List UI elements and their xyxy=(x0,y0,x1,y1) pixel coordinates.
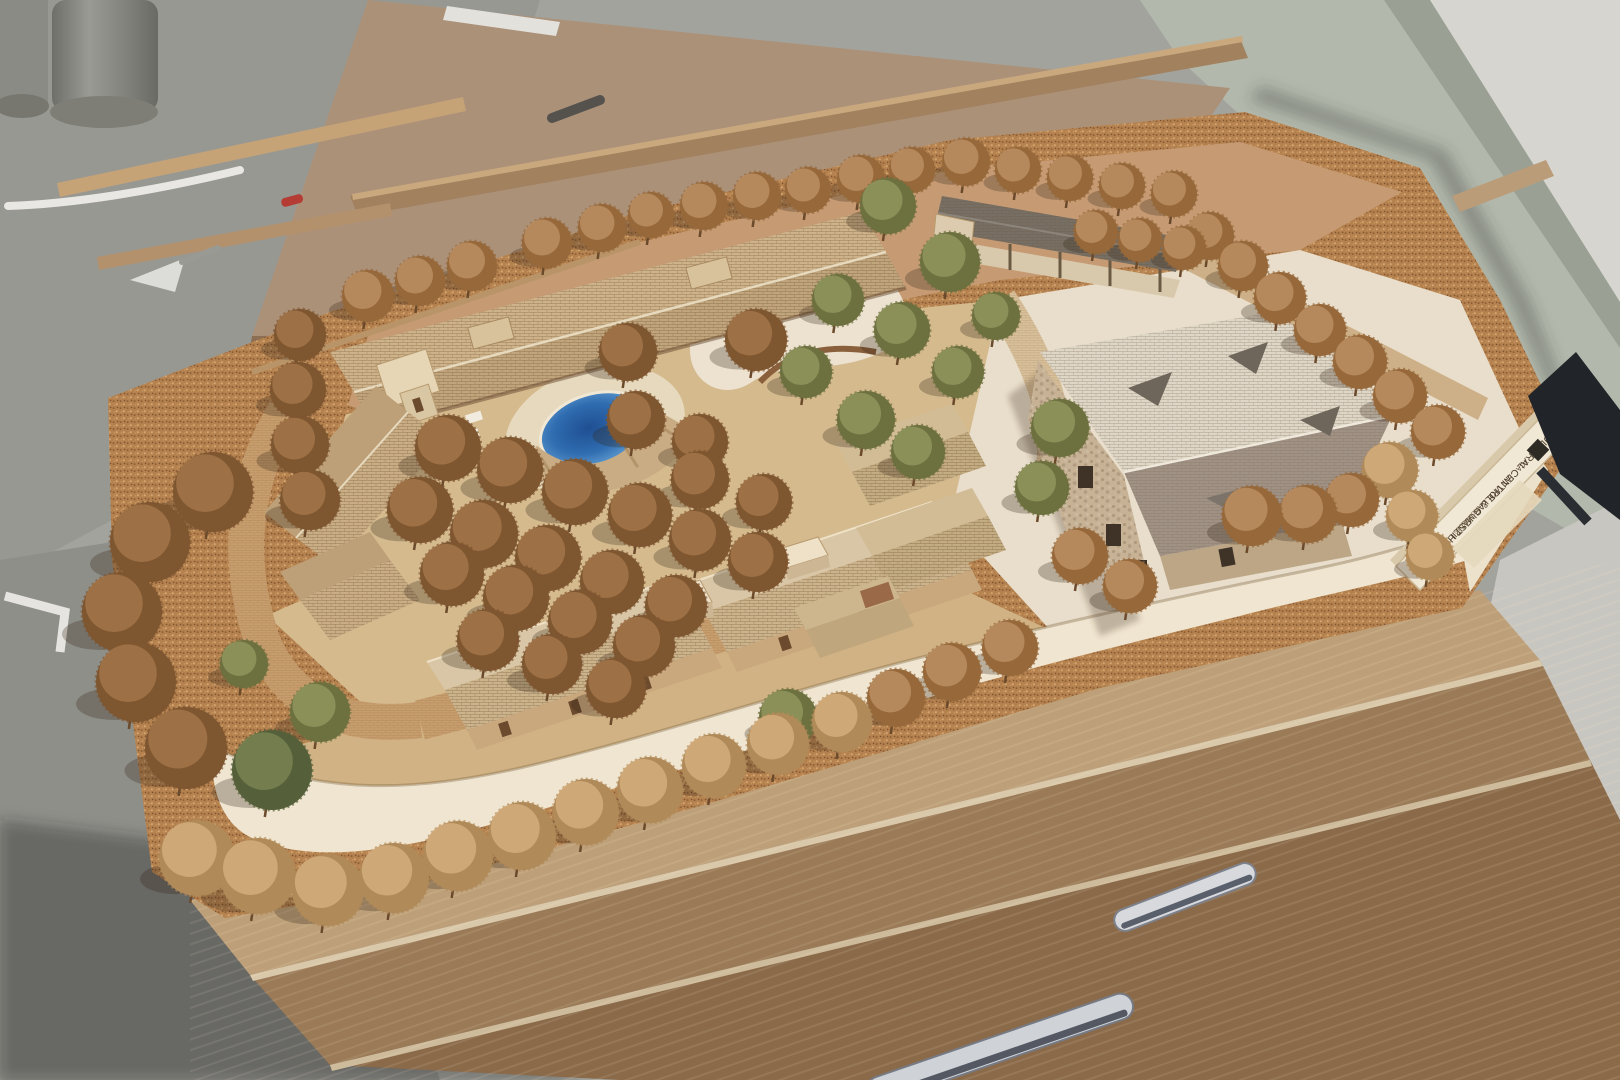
tree-canopy-highlight xyxy=(615,617,660,662)
tree-canopy-highlight xyxy=(671,511,716,556)
tree-canopy-highlight xyxy=(273,418,315,460)
tree-canopy-highlight xyxy=(934,348,971,385)
tree-canopy-highlight xyxy=(1017,463,1056,502)
tree-canopy-highlight xyxy=(893,427,932,466)
drum-large-base xyxy=(50,96,158,128)
tree-canopy-highlight xyxy=(974,293,1009,328)
scene-canvas: CULTURAL CENTRE & GUEST HOUSE AT VIOLLAR… xyxy=(0,0,1620,1080)
tree-canopy-highlight xyxy=(727,311,772,356)
metal-drums xyxy=(0,0,158,128)
tree-canopy-highlight xyxy=(601,325,643,367)
tree-canopy-highlight xyxy=(418,417,466,465)
tree-canopy-highlight xyxy=(984,622,1024,662)
tree-canopy-highlight xyxy=(782,348,819,385)
tree-canopy-highlight xyxy=(282,472,325,515)
tree-canopy-highlight xyxy=(1364,444,1404,484)
tree-canopy-highlight xyxy=(814,276,851,313)
tree-canopy-highlight xyxy=(1101,164,1134,197)
tree-canopy-highlight xyxy=(362,845,412,895)
tree-canopy-highlight xyxy=(344,272,381,309)
metal-drum-small xyxy=(0,0,48,108)
tree-canopy-highlight xyxy=(922,234,965,277)
tree-canopy-highlight xyxy=(609,393,651,435)
tree-canopy-highlight xyxy=(423,544,469,590)
tree-canopy-highlight xyxy=(1049,156,1082,189)
tree-canopy-highlight xyxy=(1054,530,1094,570)
photo-architectural-model: CULTURAL CENTRE & GUEST HOUSE AT VIOLLAR… xyxy=(0,0,1620,1080)
tree-canopy-highlight xyxy=(611,485,657,531)
tree-canopy-highlight xyxy=(459,611,504,656)
tree-canopy-highlight xyxy=(588,660,631,703)
tree-canopy-highlight xyxy=(235,732,293,790)
tree-canopy-highlight xyxy=(1120,219,1152,251)
tree-canopy-highlight xyxy=(426,823,476,873)
tree-canopy-highlight xyxy=(1413,407,1452,446)
tree-canopy-highlight xyxy=(944,139,979,174)
tree-canopy-highlight xyxy=(749,715,794,760)
tree-canopy-highlight xyxy=(1224,488,1267,531)
tree-canopy-highlight xyxy=(1076,211,1108,243)
tree-canopy-highlight xyxy=(674,416,714,456)
tree-canopy-highlight xyxy=(1408,533,1443,568)
tree-canopy-highlight xyxy=(869,671,911,713)
tree-canopy-highlight xyxy=(551,592,597,638)
tree-canopy-highlight xyxy=(620,759,668,807)
tree-canopy-highlight xyxy=(276,311,313,348)
tree-canopy-highlight xyxy=(449,243,485,279)
tree-canopy-highlight xyxy=(113,504,171,562)
tree-canopy-highlight xyxy=(730,534,773,577)
tree-canopy-highlight xyxy=(630,193,663,226)
tree-canopy-highlight xyxy=(1335,337,1374,376)
tree-canopy-highlight xyxy=(1153,172,1186,205)
metal-drum-large xyxy=(52,0,158,112)
guest-house-window-2 xyxy=(1106,524,1121,546)
tree-canopy-highlight xyxy=(1220,243,1256,279)
tree-canopy-highlight xyxy=(685,736,731,782)
tree-canopy-highlight xyxy=(162,822,217,877)
tree-canopy-highlight xyxy=(876,304,916,344)
tree-canopy-highlight xyxy=(397,258,433,294)
tree-canopy-highlight xyxy=(176,454,234,512)
tree-canopy-highlight xyxy=(1296,306,1333,343)
guest-house-window-1 xyxy=(1078,466,1093,488)
tree-canopy-highlight xyxy=(862,180,902,220)
tree-canopy-highlight xyxy=(480,439,528,487)
tree-canopy-highlight xyxy=(580,205,615,240)
tree-canopy-highlight xyxy=(1256,274,1293,311)
tree-canopy-highlight xyxy=(839,393,881,435)
tree-canopy-highlight xyxy=(1388,492,1425,529)
tree-canopy-highlight xyxy=(787,168,820,201)
tree-canopy-highlight xyxy=(222,641,257,676)
tree-canopy-highlight xyxy=(99,644,157,702)
tree-canopy-highlight xyxy=(486,567,534,615)
tree-canopy-highlight xyxy=(997,148,1030,181)
tree-canopy-highlight xyxy=(223,840,278,895)
tree-canopy-highlight xyxy=(295,856,347,908)
tree-canopy-highlight xyxy=(1375,371,1414,410)
tree-canopy-highlight xyxy=(735,173,770,208)
tree-canopy-highlight xyxy=(556,781,604,829)
tree-canopy-highlight xyxy=(738,476,778,516)
tree-canopy-highlight xyxy=(148,709,207,768)
tree-canopy-highlight xyxy=(1164,227,1196,259)
tree-canopy-highlight xyxy=(292,684,335,727)
tree-canopy-highlight xyxy=(1281,487,1323,529)
tree-canopy-highlight xyxy=(814,694,857,737)
tree-canopy-highlight xyxy=(891,148,924,181)
tree-canopy-highlight xyxy=(682,183,717,218)
tree-canopy-highlight xyxy=(545,461,593,509)
tree-canopy-highlight xyxy=(1105,561,1144,600)
tree-canopy-highlight xyxy=(925,645,967,687)
tree-canopy-highlight xyxy=(272,364,312,404)
tree-canopy-highlight xyxy=(85,574,143,632)
tree-canopy-highlight xyxy=(1033,401,1075,443)
tree-canopy-highlight xyxy=(524,636,567,679)
tree-canopy-highlight xyxy=(390,479,438,527)
tree-canopy-highlight xyxy=(673,453,715,495)
tree-canopy-highlight xyxy=(491,804,540,853)
tree-canopy-highlight xyxy=(647,577,692,622)
tree-canopy-highlight xyxy=(524,220,560,256)
